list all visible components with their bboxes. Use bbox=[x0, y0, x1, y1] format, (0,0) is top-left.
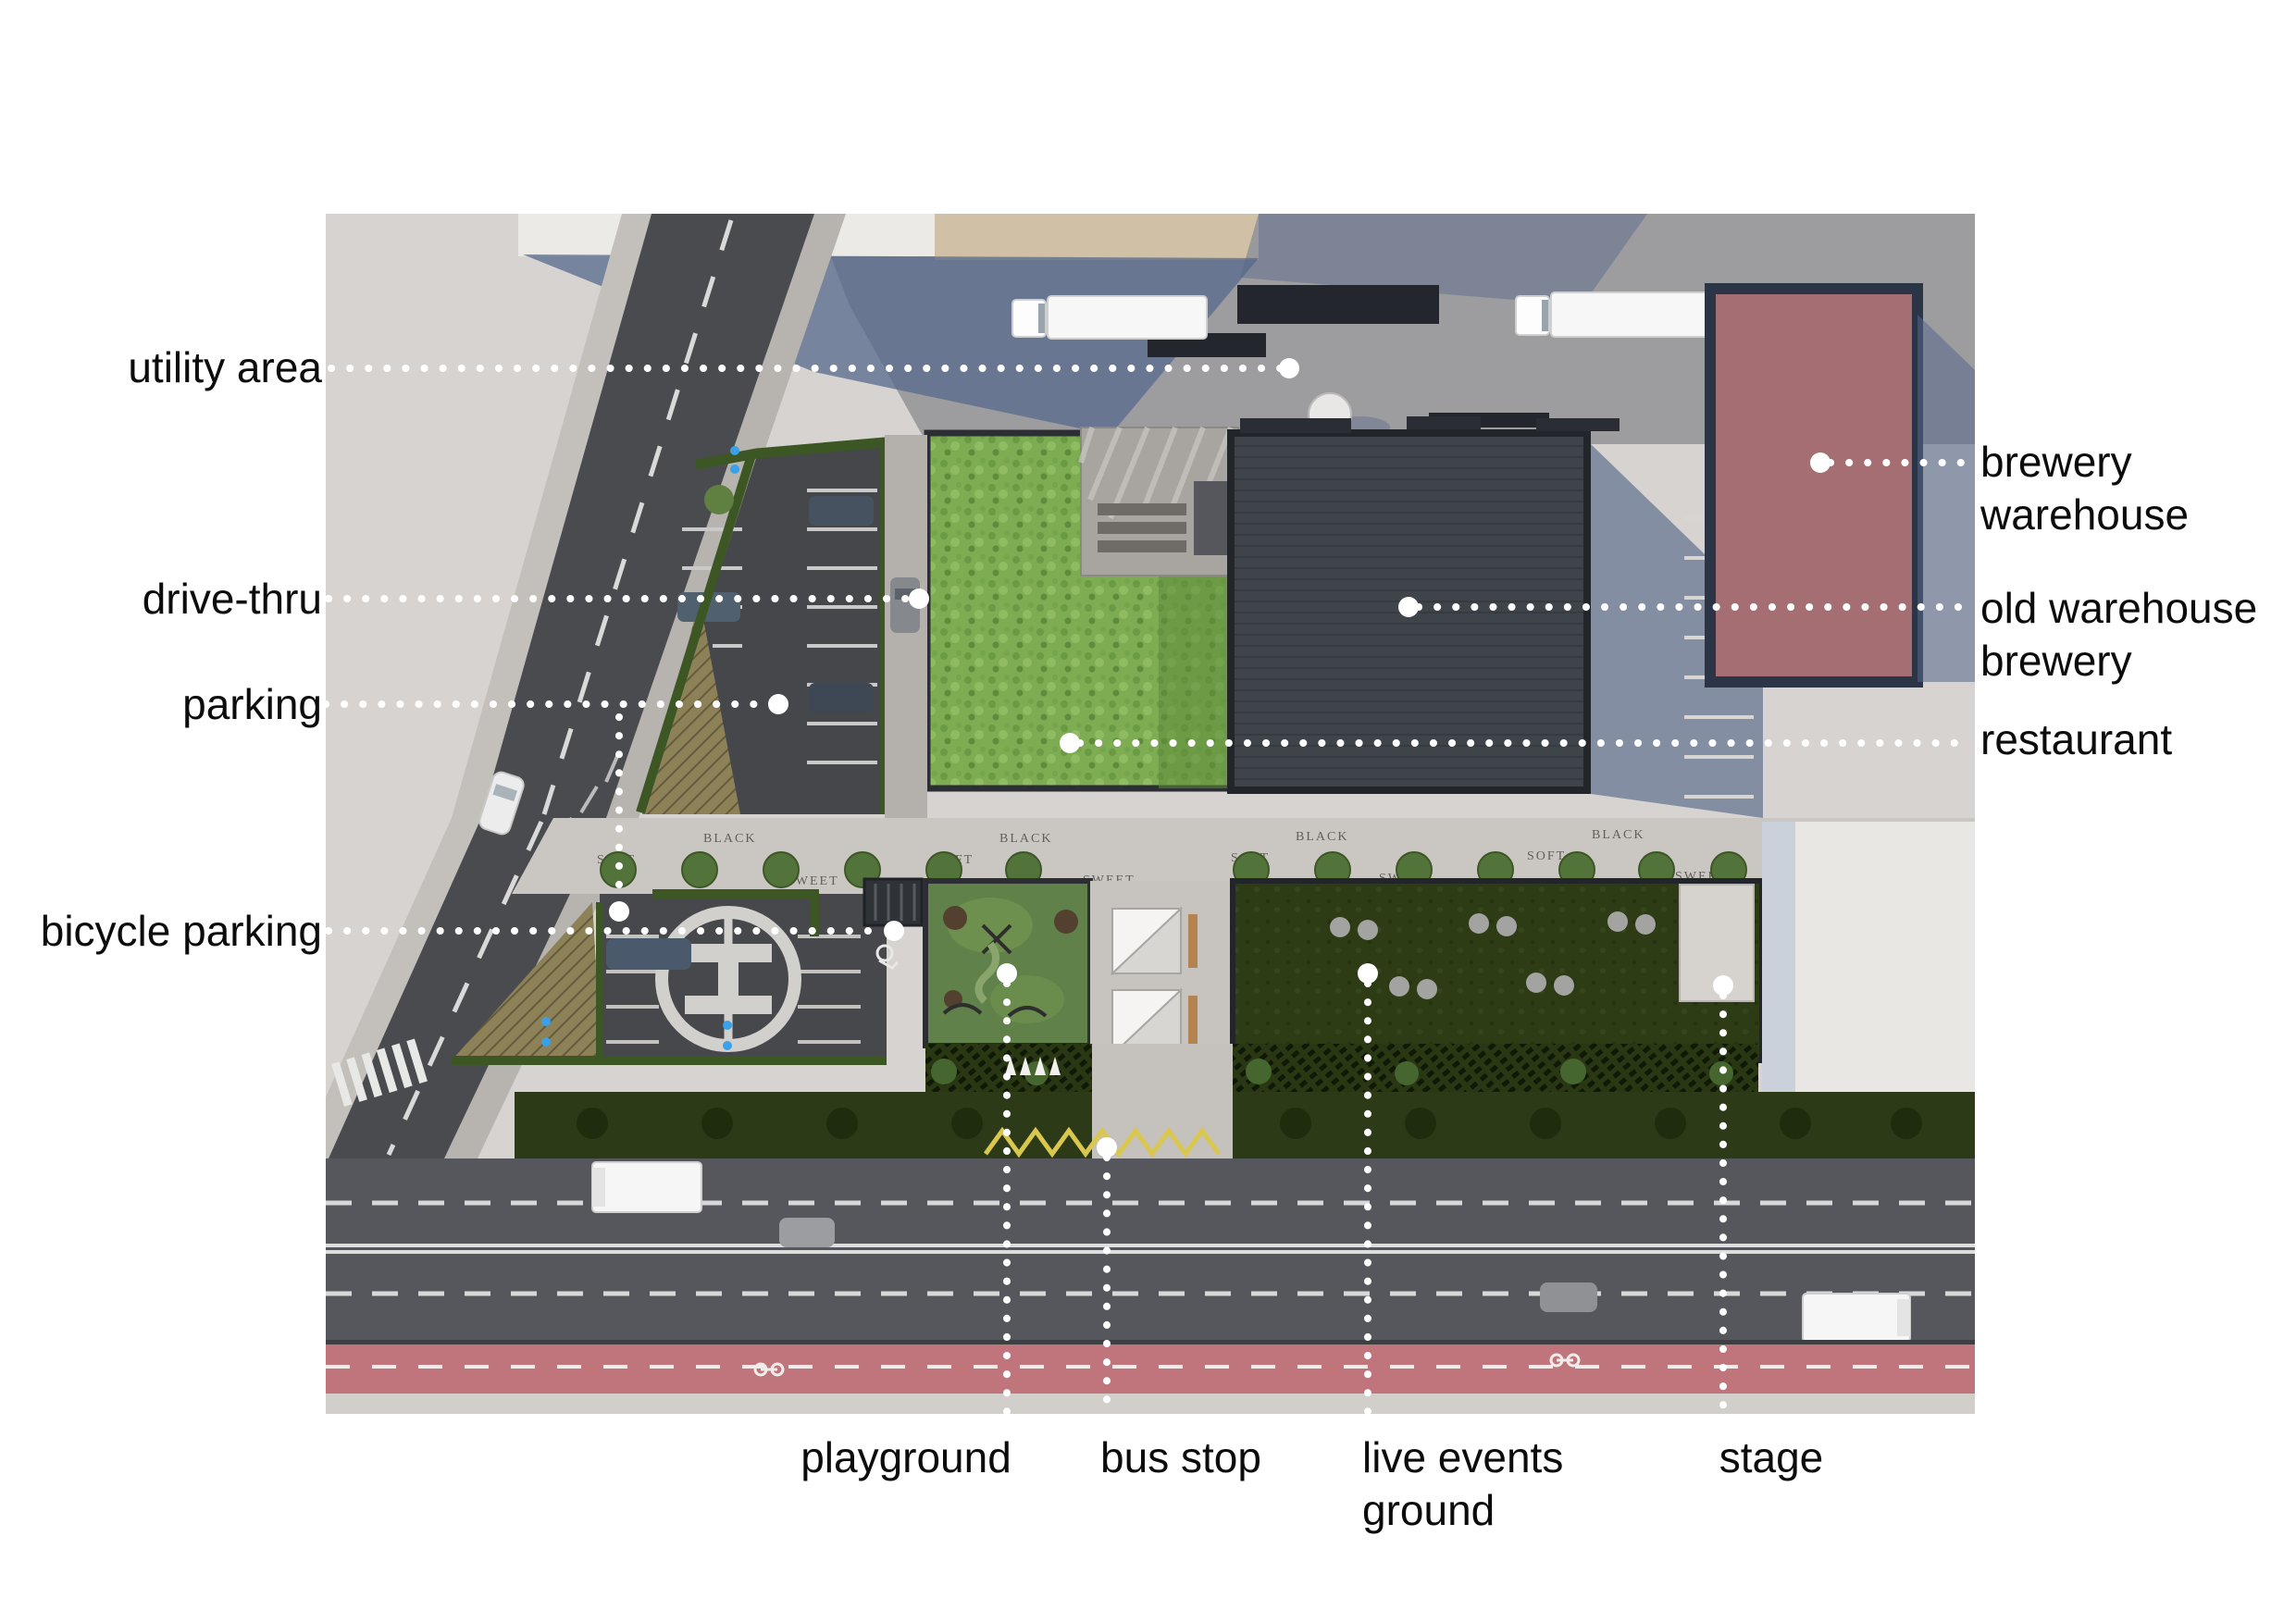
ev-charger bbox=[730, 465, 739, 474]
ev-charger bbox=[541, 1017, 551, 1026]
bike-lane-edge bbox=[326, 1340, 1975, 1344]
restaurant-terrace bbox=[1081, 427, 1238, 576]
box-truck bbox=[592, 1162, 701, 1212]
label-line: brewery bbox=[1980, 635, 2257, 688]
roof-unit bbox=[1240, 418, 1351, 433]
label-stage: stage bbox=[1719, 1431, 1824, 1484]
box-truck bbox=[1803, 1294, 1910, 1342]
label-line: restaurant bbox=[1980, 713, 2172, 766]
label-line: warehouse bbox=[1980, 489, 2189, 541]
main-road bbox=[326, 1158, 1975, 1340]
parked-car bbox=[809, 496, 874, 526]
annotated-site-plan-page: BLACK BLACK BLACK BLACK BLACK SOFT SOFT … bbox=[0, 0, 2296, 1623]
ev-charger bbox=[723, 1041, 732, 1050]
parked-car bbox=[809, 683, 874, 712]
svg-text:BLACK: BLACK bbox=[999, 832, 1052, 846]
label-line: old warehouse bbox=[1980, 582, 2257, 635]
label-old-warehouse-brewery: old warehouse brewery bbox=[1980, 582, 2257, 688]
label-line: live events bbox=[1362, 1431, 1563, 1484]
brewery-warehouse-building bbox=[1710, 289, 1917, 682]
label-line: brewery bbox=[1980, 436, 2189, 489]
site-plan-render: BLACK BLACK BLACK BLACK BLACK SOFT SOFT … bbox=[0, 0, 2296, 1623]
ev-charger bbox=[730, 446, 739, 455]
parked-car bbox=[606, 938, 691, 970]
svg-text:SOFT: SOFT bbox=[1527, 849, 1566, 863]
car bbox=[779, 1218, 835, 1247]
ev-charger bbox=[541, 1037, 551, 1047]
ev-charger bbox=[723, 1021, 732, 1030]
neighbor-building-wall bbox=[935, 214, 1259, 260]
label-restaurant: restaurant bbox=[1980, 713, 2172, 766]
tree bbox=[704, 485, 734, 514]
label-drive-thru: drive-thru bbox=[143, 573, 322, 626]
label-utility-area: utility area bbox=[128, 341, 322, 394]
loading-dock-canopy bbox=[1237, 285, 1439, 324]
roof-unit bbox=[1536, 418, 1620, 431]
car bbox=[1540, 1282, 1597, 1312]
bicycle-parking-racks bbox=[864, 879, 922, 925]
red-building-shadow bbox=[1917, 315, 1975, 682]
green-verge bbox=[515, 1092, 1975, 1158]
delivery-truck bbox=[1012, 296, 1207, 339]
svg-text:BLACK: BLACK bbox=[1296, 830, 1348, 844]
label-live-events-ground: live events ground bbox=[1362, 1431, 1563, 1537]
svg-text:BLACK: BLACK bbox=[1592, 828, 1644, 842]
delivery-truck bbox=[1516, 292, 1710, 337]
svg-text:BLACK: BLACK bbox=[703, 832, 756, 846]
label-brewery-warehouse: brewery warehouse bbox=[1980, 436, 2189, 541]
label-playground: playground bbox=[800, 1431, 1011, 1484]
label-parking: parking bbox=[182, 678, 322, 731]
label-line: ground bbox=[1362, 1484, 1563, 1537]
label-line: playground bbox=[800, 1431, 1011, 1484]
label-line: stage bbox=[1719, 1431, 1824, 1484]
hedge-strip bbox=[925, 1044, 1758, 1092]
roof-unit bbox=[1407, 416, 1481, 429]
label-bicycle-parking: bicycle parking bbox=[41, 905, 322, 958]
label-bus-stop: bus stop bbox=[1100, 1431, 1261, 1484]
label-line: bus stop bbox=[1100, 1431, 1261, 1484]
south-sidewalk bbox=[326, 1394, 1975, 1414]
